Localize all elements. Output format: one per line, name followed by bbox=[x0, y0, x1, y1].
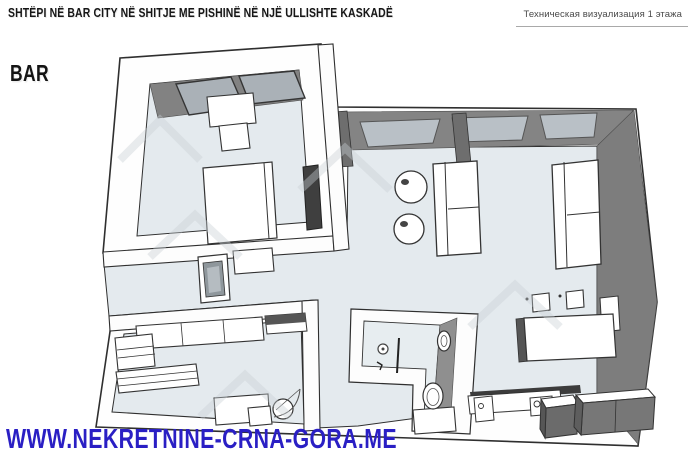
floor-plan-visualization bbox=[0, 0, 688, 460]
island-unit bbox=[540, 395, 578, 438]
pouf bbox=[394, 214, 424, 244]
chair bbox=[219, 123, 250, 151]
sink-unit bbox=[474, 396, 494, 422]
page-title: SHTËPI NË BAR CITY NË SHITJE ME PISHINË … bbox=[8, 5, 393, 20]
city-label: BAR bbox=[10, 60, 49, 87]
glass-pane bbox=[360, 119, 440, 147]
chair bbox=[566, 290, 584, 309]
toilet-base bbox=[413, 407, 456, 434]
washbasin bbox=[438, 331, 451, 351]
website-url: WWW.NEKRETNINE-CRNA-GORA.ME bbox=[6, 423, 397, 455]
annotation-divider bbox=[516, 26, 688, 27]
glass-pane bbox=[540, 113, 597, 139]
technical-annotation: Техническая визуализация 1 этажа bbox=[523, 9, 682, 20]
pouf bbox=[395, 171, 427, 203]
shelving-unit bbox=[115, 334, 155, 370]
dining-table bbox=[524, 314, 616, 361]
desk bbox=[207, 93, 256, 127]
room-bedroom-top-left bbox=[137, 70, 322, 244]
appliance-unit bbox=[574, 389, 655, 435]
